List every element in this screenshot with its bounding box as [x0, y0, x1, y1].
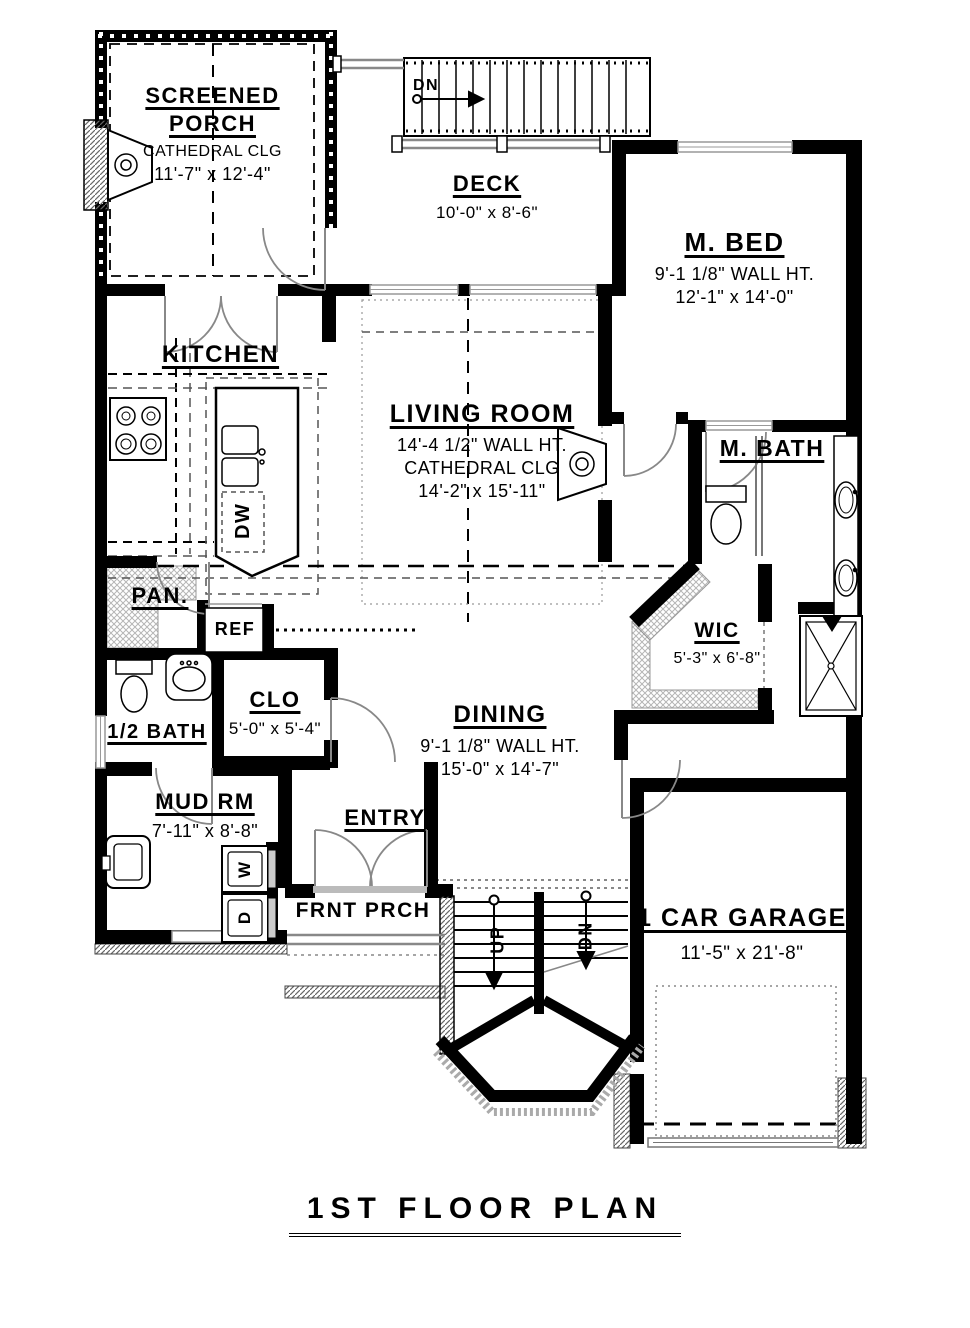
- mudroom-sink: [102, 836, 150, 888]
- pantry-name: PAN.: [132, 582, 189, 610]
- entry-name: ENTRY: [344, 804, 425, 832]
- deck-label: DECK 10'-0" x 8'-6": [402, 170, 572, 224]
- ref-text: REF: [206, 618, 264, 641]
- half-bath-name: 1/2 BATH: [107, 720, 206, 746]
- deck-dn-label: DN: [404, 76, 448, 96]
- front-porch-rail: [287, 935, 445, 944]
- halfbath-toilet: [116, 660, 152, 712]
- stairs-up-label: UP: [486, 920, 509, 960]
- exterior-brick-hatch: [95, 944, 866, 1148]
- deck: [333, 56, 650, 152]
- wic-dims: 5'-3" x 6'-8": [656, 649, 778, 669]
- mbath-label: M. BATH: [698, 434, 846, 463]
- deck-name: DECK: [453, 170, 521, 198]
- floor-plan: SCREENED PORCH CATHEDRAL CLG 11'-7" x 12…: [0, 0, 970, 1328]
- mbath-toilet: [706, 486, 746, 544]
- mbed-name: M. BED: [685, 226, 785, 259]
- screened-porch-ceiling: CATHEDRAL CLG: [105, 142, 320, 162]
- mbath-window: [706, 421, 772, 430]
- garage-label: 1 CAR GARAGE 11'-5" x 21'-8": [626, 902, 858, 966]
- half-bath-label: 1/2 BATH: [98, 720, 216, 746]
- closet-label: CLO 5'-0" x 5'-4": [214, 686, 336, 740]
- deck-dims: 10'-0" x 8'-6": [402, 202, 572, 224]
- plan-title: 1ST FLOOR PLAN: [285, 1192, 685, 1237]
- dining-dims: 15'-0" x 14'-7": [386, 758, 614, 781]
- screened-porch-name: SCREENED PORCH: [105, 82, 320, 138]
- garage-door: [648, 1138, 838, 1147]
- mud-room-label: MUD RM 7'-11" x 8'-8": [110, 788, 300, 843]
- dishwasher-label: DW: [231, 499, 257, 543]
- dining-name: DINING: [454, 700, 547, 731]
- dining-label: DINING 9'-1 1/8" WALL HT. 15'-0" x 14'-7…: [386, 700, 614, 781]
- mud-room-name: MUD RM: [155, 788, 254, 816]
- front-door-slab: [313, 886, 427, 893]
- mbed-label: M. BED 9'-1 1/8" WALL HT. 12'-1" x 14'-0…: [612, 226, 857, 309]
- living-room-label: LIVING ROOM 14'-4 1/2" WALL HT. CATHEDRA…: [366, 398, 598, 503]
- wic-name: WIC: [694, 618, 739, 645]
- kitchen-island: [216, 388, 298, 576]
- living-room-dims: 14'-2" x 15'-11": [366, 480, 598, 503]
- washer-label: W: [234, 849, 256, 889]
- living-window: [370, 285, 596, 294]
- shower: [800, 616, 862, 716]
- ref-label: REF: [206, 618, 264, 641]
- mbath-name: M. BATH: [720, 434, 825, 463]
- stairs-dn-label: DN: [574, 916, 597, 956]
- wic-label: WIC 5'-3" x 6'-8": [656, 618, 778, 669]
- closet-name: CLO: [250, 686, 301, 714]
- plan-title-text: 1ST FLOOR PLAN: [289, 1192, 681, 1237]
- front-porch-name: FRNT PRCH: [282, 898, 444, 925]
- pantry-label: PAN.: [112, 582, 208, 610]
- screened-porch-dims: 11'-7" x 12'-4": [105, 163, 320, 186]
- kitchen-label: KITCHEN: [138, 340, 303, 371]
- garage-name: 1 CAR GARAGE: [637, 902, 847, 934]
- mbed-dims: 12'-1" x 14'-0": [612, 286, 857, 309]
- closet-dims: 5'-0" x 5'-4": [214, 718, 336, 740]
- dining-wallht: 9'-1 1/8" WALL HT.: [386, 735, 614, 758]
- range-stove: [110, 398, 166, 460]
- living-room-name: LIVING ROOM: [390, 398, 575, 430]
- screened-porch-label: SCREENED PORCH CATHEDRAL CLG 11'-7" x 12…: [105, 82, 320, 186]
- mud-room-dims: 7'-11" x 8'-8": [110, 820, 300, 843]
- kitchen-name: KITCHEN: [162, 340, 279, 371]
- living-room-ceiling: CATHEDRAL CLG: [366, 457, 598, 480]
- halfbath-sink: [166, 654, 212, 700]
- garage-dims: 11'-5" x 21'-8": [626, 942, 858, 966]
- front-porch-label: FRNT PRCH: [282, 898, 444, 925]
- entry-label: ENTRY: [328, 804, 442, 832]
- mbed-window: [678, 142, 792, 152]
- dryer-label: D: [234, 897, 256, 937]
- living-room-wallht: 14'-4 1/2" WALL HT.: [366, 434, 598, 457]
- mbed-wallht: 9'-1 1/8" WALL HT.: [612, 263, 857, 286]
